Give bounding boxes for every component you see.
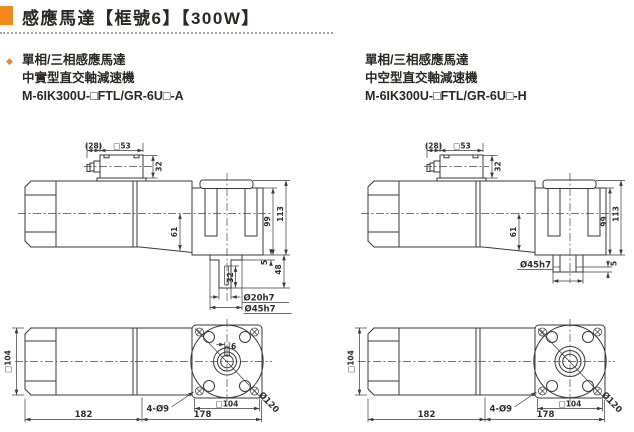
dim-label-178: 178: [537, 410, 555, 420]
diamond-bullet-icon: ◆: [6, 57, 13, 66]
dimensions: (28) □53 32 61 99 113 Ø45h7: [425, 142, 625, 284]
right-column-header: 單相/三相感應馬達 中空型直交軸減速機 M-6IK300U-□FTL/GR-6U…: [365, 51, 527, 105]
drawing-hollow-shaft-top-view: □104 182 178 4-Ø9 □104 Ø120: [335, 314, 634, 432]
dim-label-182: 182: [418, 410, 436, 420]
gearhead: [535, 180, 606, 272]
dim-label-113: 113: [276, 206, 285, 222]
right-gear-type: 中空型直交軸減速機: [365, 69, 527, 87]
motor-body: [25, 181, 192, 253]
dim-label-pilot-dia: Ø120: [256, 390, 281, 416]
dim-label-61: 61: [170, 227, 179, 237]
drawing-hollow-shaft-side-view: (28) □53 32 61 99 113 Ø45h7: [335, 138, 634, 315]
dim-label-holes: 4-Ø9: [490, 404, 513, 415]
gearhead: [192, 180, 263, 288]
left-motor-type: 單相/三相感應馬達: [22, 51, 184, 69]
dim-label-99: 99: [263, 216, 272, 226]
dim-label-32-shaft: 32: [226, 272, 235, 282]
dim-label-5: 5: [260, 260, 269, 265]
left-column-header: 單相/三相感應馬達 中實型直交軸減速機 M-6IK300U-□FTL/GR-6U…: [22, 51, 184, 105]
flange-face: [534, 325, 611, 405]
dim-label-113: 113: [611, 206, 620, 222]
right-motor-type: 單相/三相感應馬達: [365, 51, 527, 69]
dim-label-178: 178: [194, 410, 212, 420]
dim-label-5: 5: [610, 261, 619, 266]
flange-face: [191, 325, 268, 405]
dim-label-28: (28): [85, 142, 102, 151]
terminal-box: [427, 155, 486, 181]
left-gear-type: 中實型直交軸減速機: [22, 69, 184, 87]
dim-label-key-width: 6: [231, 342, 236, 351]
terminal-box: [87, 155, 146, 181]
dim-label-boss-dia: Ø45h7: [245, 304, 276, 315]
dim-label-28: (28): [425, 142, 442, 151]
page-title: 感應馬達【框號6】【300W】: [22, 4, 260, 29]
dim-label-99: 99: [600, 216, 609, 226]
title-separator: [0, 32, 333, 34]
dim-label-shaft-dia: Ø20h7: [244, 293, 275, 304]
dim-label-pilot-dia: Ø120: [599, 390, 624, 416]
dim-label-53: □53: [113, 142, 131, 151]
dim-label-61: 61: [509, 227, 518, 237]
dim-label-sq104-flange: □104: [559, 400, 582, 409]
dim-label-holes: 4-Ø9: [147, 404, 170, 415]
left-model-number: M-6IK300U-□FTL/GR-6U□-A: [22, 87, 184, 105]
dim-label-sq104-body: □104: [4, 350, 13, 373]
drawing-solid-shaft-side-view: (28) □53 32 61 99 113 5 48: [0, 138, 300, 315]
dim-label-32-box: 32: [155, 161, 164, 171]
motor-body: [368, 181, 535, 253]
drawing-solid-shaft-top-view: □104 182 178 4-Ø9 □104 Ø120 6: [0, 314, 300, 432]
dim-label-boss-dia: Ø45h7: [520, 260, 551, 271]
right-model-number: M-6IK300U-□FTL/GR-6U□-H: [365, 87, 527, 105]
dim-label-53: □53: [453, 142, 471, 151]
dim-label-sq104-body: □104: [347, 350, 356, 373]
dim-label-32-box: 32: [494, 161, 503, 171]
dim-label-sq104-flange: □104: [216, 400, 239, 409]
dimensions: (28) □53 32 61 99 113 5 48: [85, 142, 292, 315]
title-accent-block: [0, 6, 13, 25]
dim-label-48: 48: [274, 264, 283, 274]
dim-label-182: 182: [75, 410, 93, 420]
catalog-page: 感應馬達【框號6】【300W】 ◆ 單相/三相感應馬達 中實型直交軸減速機 M-…: [0, 0, 634, 432]
